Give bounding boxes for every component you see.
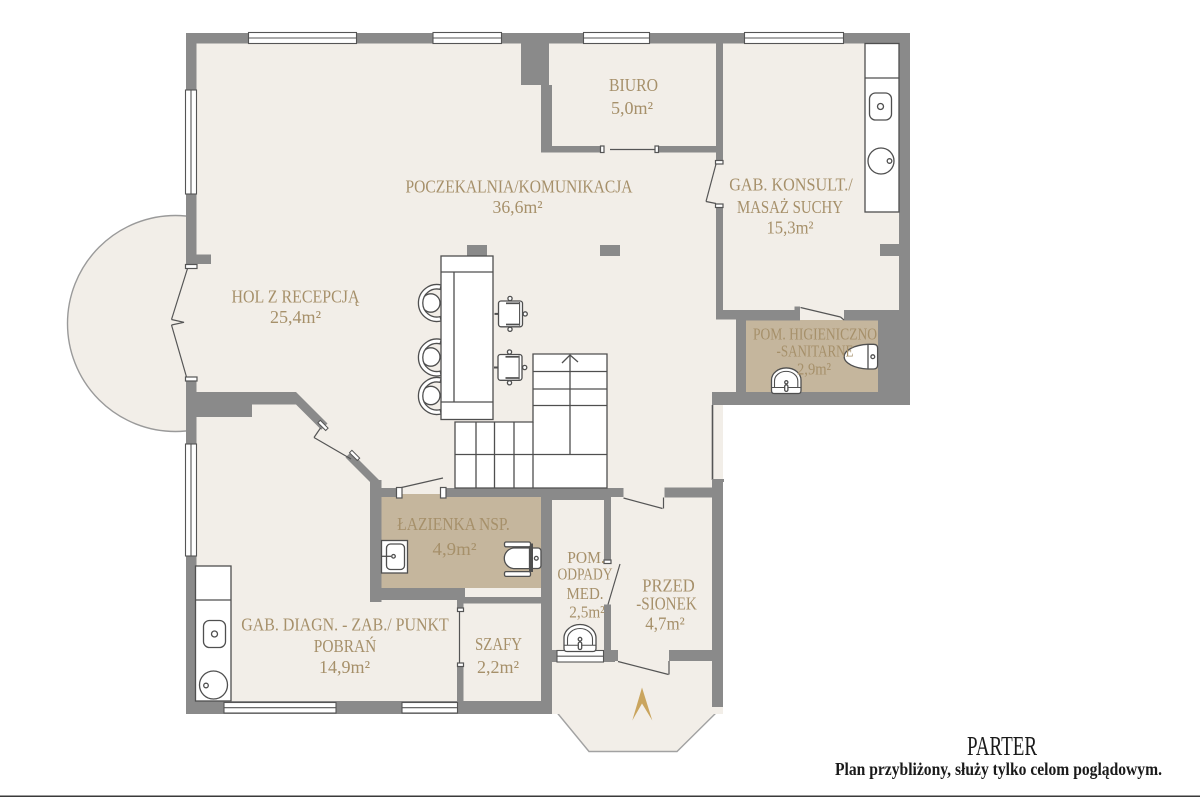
svg-text:BIURO: BIURO xyxy=(609,75,658,95)
svg-text:5,0m²: 5,0m² xyxy=(611,98,653,118)
svg-text:ŁAZIENKA NSP.: ŁAZIENKA NSP. xyxy=(397,514,510,534)
svg-text:POBRAŃ: POBRAŃ xyxy=(314,635,377,656)
svg-text:PARTER: PARTER xyxy=(967,731,1037,761)
svg-text:4,7m²: 4,7m² xyxy=(645,614,685,634)
svg-text:HOL Z RECEPCJĄ: HOL Z RECEPCJĄ xyxy=(232,287,360,307)
svg-text:14,9m²: 14,9m² xyxy=(319,657,370,677)
svg-text:36,6m²: 36,6m² xyxy=(493,197,543,217)
svg-text:Plan przybliżony, służy tylko: Plan przybliżony, służy tylko celom pogl… xyxy=(835,759,1162,779)
svg-text:ODPADY: ODPADY xyxy=(558,565,613,584)
svg-text:-SANITARNE: -SANITARNE xyxy=(777,342,854,361)
svg-text:25,4m²: 25,4m² xyxy=(270,307,321,327)
svg-text:GAB. KONSULT./: GAB. KONSULT./ xyxy=(729,175,853,195)
svg-text:MASAŻ SUCHY: MASAŻ SUCHY xyxy=(737,197,843,217)
svg-text:2,2m²: 2,2m² xyxy=(477,657,519,677)
svg-text:2,9m²: 2,9m² xyxy=(797,360,831,379)
svg-text:SZAFY: SZAFY xyxy=(475,634,522,654)
svg-text:15,3m²: 15,3m² xyxy=(767,218,814,238)
svg-text:2,5m²: 2,5m² xyxy=(569,603,605,622)
svg-text:POCZEKALNIA/KOMUNIKACJA: POCZEKALNIA/KOMUNIKACJA xyxy=(406,177,633,197)
svg-text:-SIONEK: -SIONEK xyxy=(636,594,697,614)
svg-text:GAB. DIAGN. - ZAB./ PUNKT: GAB. DIAGN. - ZAB./ PUNKT xyxy=(241,615,449,635)
svg-text:MED.: MED. xyxy=(567,584,604,603)
svg-text:PRZED: PRZED xyxy=(642,576,695,596)
svg-text:4,9m²: 4,9m² xyxy=(433,539,477,559)
